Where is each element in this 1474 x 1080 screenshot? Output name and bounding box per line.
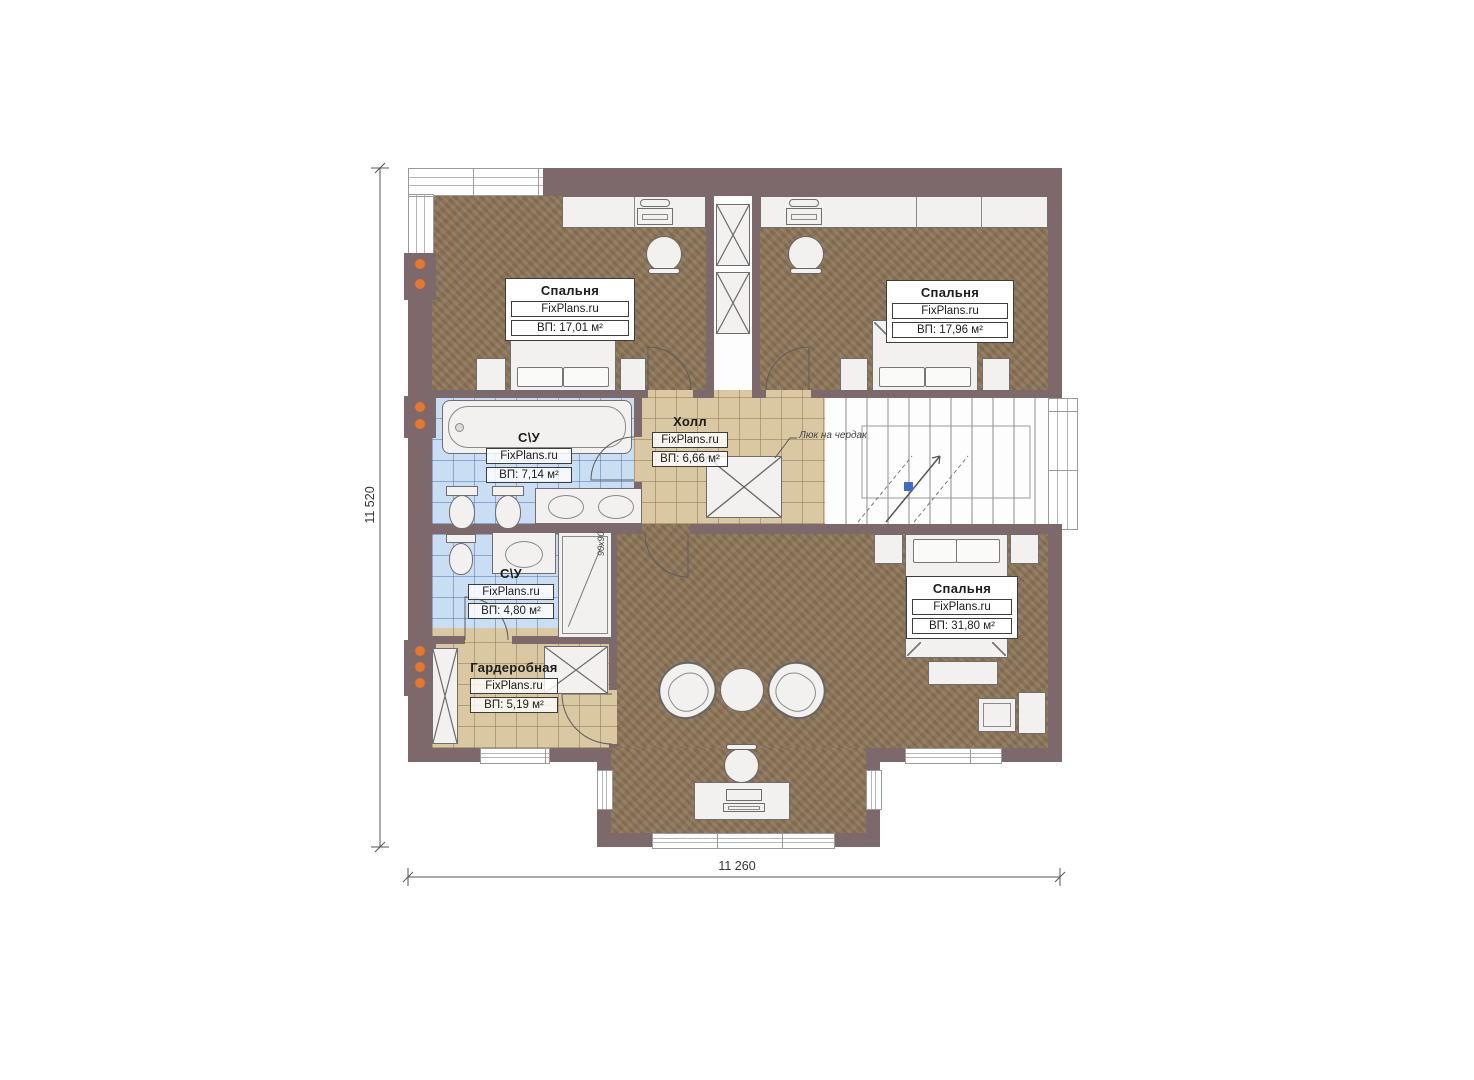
wall-a2	[693, 390, 706, 398]
laptop-icon	[723, 803, 765, 812]
vent-shaft-icon	[716, 204, 750, 266]
room-area: ВП: 4,80 м²	[468, 603, 554, 619]
room-name: Гардеробная	[462, 660, 566, 675]
wall-shaft-right	[752, 196, 760, 398]
room-site: FixPlans.ru	[892, 303, 1008, 319]
wall-a3	[760, 390, 766, 398]
sink-counter	[535, 488, 642, 524]
window-top-corner	[408, 168, 547, 196]
bidet	[495, 495, 521, 529]
wardrobe-cabinet	[432, 648, 458, 744]
flue-dot	[415, 402, 425, 412]
floor-plan-canvas: 90х90	[0, 0, 1474, 1080]
wall-shaft-left	[706, 196, 714, 398]
room-site: FixPlans.ru	[468, 584, 554, 600]
room-area: ВП: 5,19 м²	[470, 697, 558, 713]
room-name: С\У	[486, 430, 572, 445]
window-extension-bottom	[652, 833, 835, 849]
desk	[562, 196, 706, 228]
label-bedroom-master: Спальня FixPlans.ru ВП: 31,80 м²	[906, 576, 1018, 639]
toilet	[449, 495, 475, 529]
wall-ext-bottom-l	[597, 833, 652, 847]
flue-dot	[415, 646, 425, 656]
nightstand	[874, 534, 903, 564]
desk	[694, 782, 790, 820]
window-extension-left	[597, 770, 613, 810]
toilet	[446, 534, 476, 543]
printer-icon	[789, 199, 819, 207]
office-chair-back	[726, 744, 757, 750]
stairs-area	[825, 398, 1048, 524]
room-site: FixPlans.ru	[486, 448, 572, 464]
window-stairs-right	[1048, 398, 1078, 530]
coffee-table	[720, 668, 764, 712]
wall-ext-bottom-r	[833, 833, 880, 847]
label-bedroom-top-right: Спальня FixPlans.ru ВП: 17,96 м²	[886, 280, 1014, 343]
room-site: FixPlans.ru	[912, 599, 1012, 615]
wall-a1	[432, 390, 648, 398]
flue-box-1	[404, 253, 436, 300]
tv-cabinet	[1018, 692, 1046, 734]
wall-top	[543, 168, 1062, 196]
window-bottom-right	[905, 748, 1002, 764]
dimension-bottom-label: 11 260	[692, 859, 782, 873]
room-area: ВП: 7,14 м²	[486, 467, 572, 483]
cabinet	[978, 698, 1016, 732]
nightstand	[476, 358, 506, 391]
nightstand	[620, 358, 646, 391]
wall-right	[1048, 196, 1062, 398]
room-name: Спальня	[912, 581, 1012, 596]
room-site: FixPlans.ru	[652, 432, 728, 448]
flue-dot	[415, 419, 425, 429]
nightstand	[840, 358, 868, 391]
label-bathroom-1: С\У FixPlans.ru ВП: 7,14 м²	[486, 430, 572, 483]
flue-dot	[415, 259, 425, 269]
window-extension-right	[866, 770, 882, 810]
office-chair-back	[790, 268, 822, 274]
attic-note: Люк на чердак	[799, 430, 867, 441]
wall-b2	[690, 524, 1062, 534]
room-area: ВП: 6,66 м²	[652, 451, 728, 467]
wall-right-lower	[1048, 528, 1062, 762]
label-bathroom-2: С\У FixPlans.ru ВП: 4,80 м²	[468, 566, 554, 619]
wall-d2	[609, 744, 617, 748]
room-name: Спальня	[511, 283, 629, 298]
nightstand	[982, 358, 1010, 391]
shower-size-label: 90х90	[596, 531, 606, 556]
flue-dot	[415, 662, 425, 672]
office-chair	[788, 236, 824, 272]
wall-c1	[634, 398, 642, 437]
bed-bench	[928, 661, 998, 685]
room-name: Спальня	[892, 285, 1008, 300]
office-chair-back	[648, 268, 680, 274]
printer-icon	[640, 199, 670, 207]
room-site: FixPlans.ru	[511, 301, 629, 317]
label-wardrobe: Гардеробная FixPlans.ru ВП: 5,19 м²	[462, 660, 566, 713]
flue-box-2	[404, 396, 436, 438]
flue-dot	[415, 678, 425, 688]
window-wardrobe	[480, 748, 550, 764]
room-area: ВП: 31,80 м²	[912, 618, 1012, 634]
wall-e1	[432, 636, 465, 644]
room-area: ВП: 17,01 м²	[511, 320, 629, 336]
dimension-left-label: 11 520	[363, 473, 377, 537]
window-left-corner	[408, 194, 434, 256]
room-site: FixPlans.ru	[470, 678, 558, 694]
wall-a4	[811, 390, 1048, 398]
room-area: ВП: 17,96 м²	[892, 322, 1008, 338]
vent-shaft-icon	[716, 272, 750, 334]
printer-icon	[786, 208, 822, 225]
office-chair	[646, 236, 682, 272]
office-chair	[724, 748, 759, 783]
printer-icon	[637, 208, 673, 225]
laptop-icon	[726, 789, 762, 801]
flue-dot	[415, 279, 425, 289]
label-hall: Холл FixPlans.ru ВП: 6,66 м²	[652, 414, 728, 467]
nightstand	[1010, 534, 1039, 564]
room-name: С\У	[468, 566, 554, 581]
label-bedroom-top-left: Спальня FixPlans.ru ВП: 17,01 м²	[505, 278, 635, 341]
room-name: Холл	[652, 414, 728, 429]
